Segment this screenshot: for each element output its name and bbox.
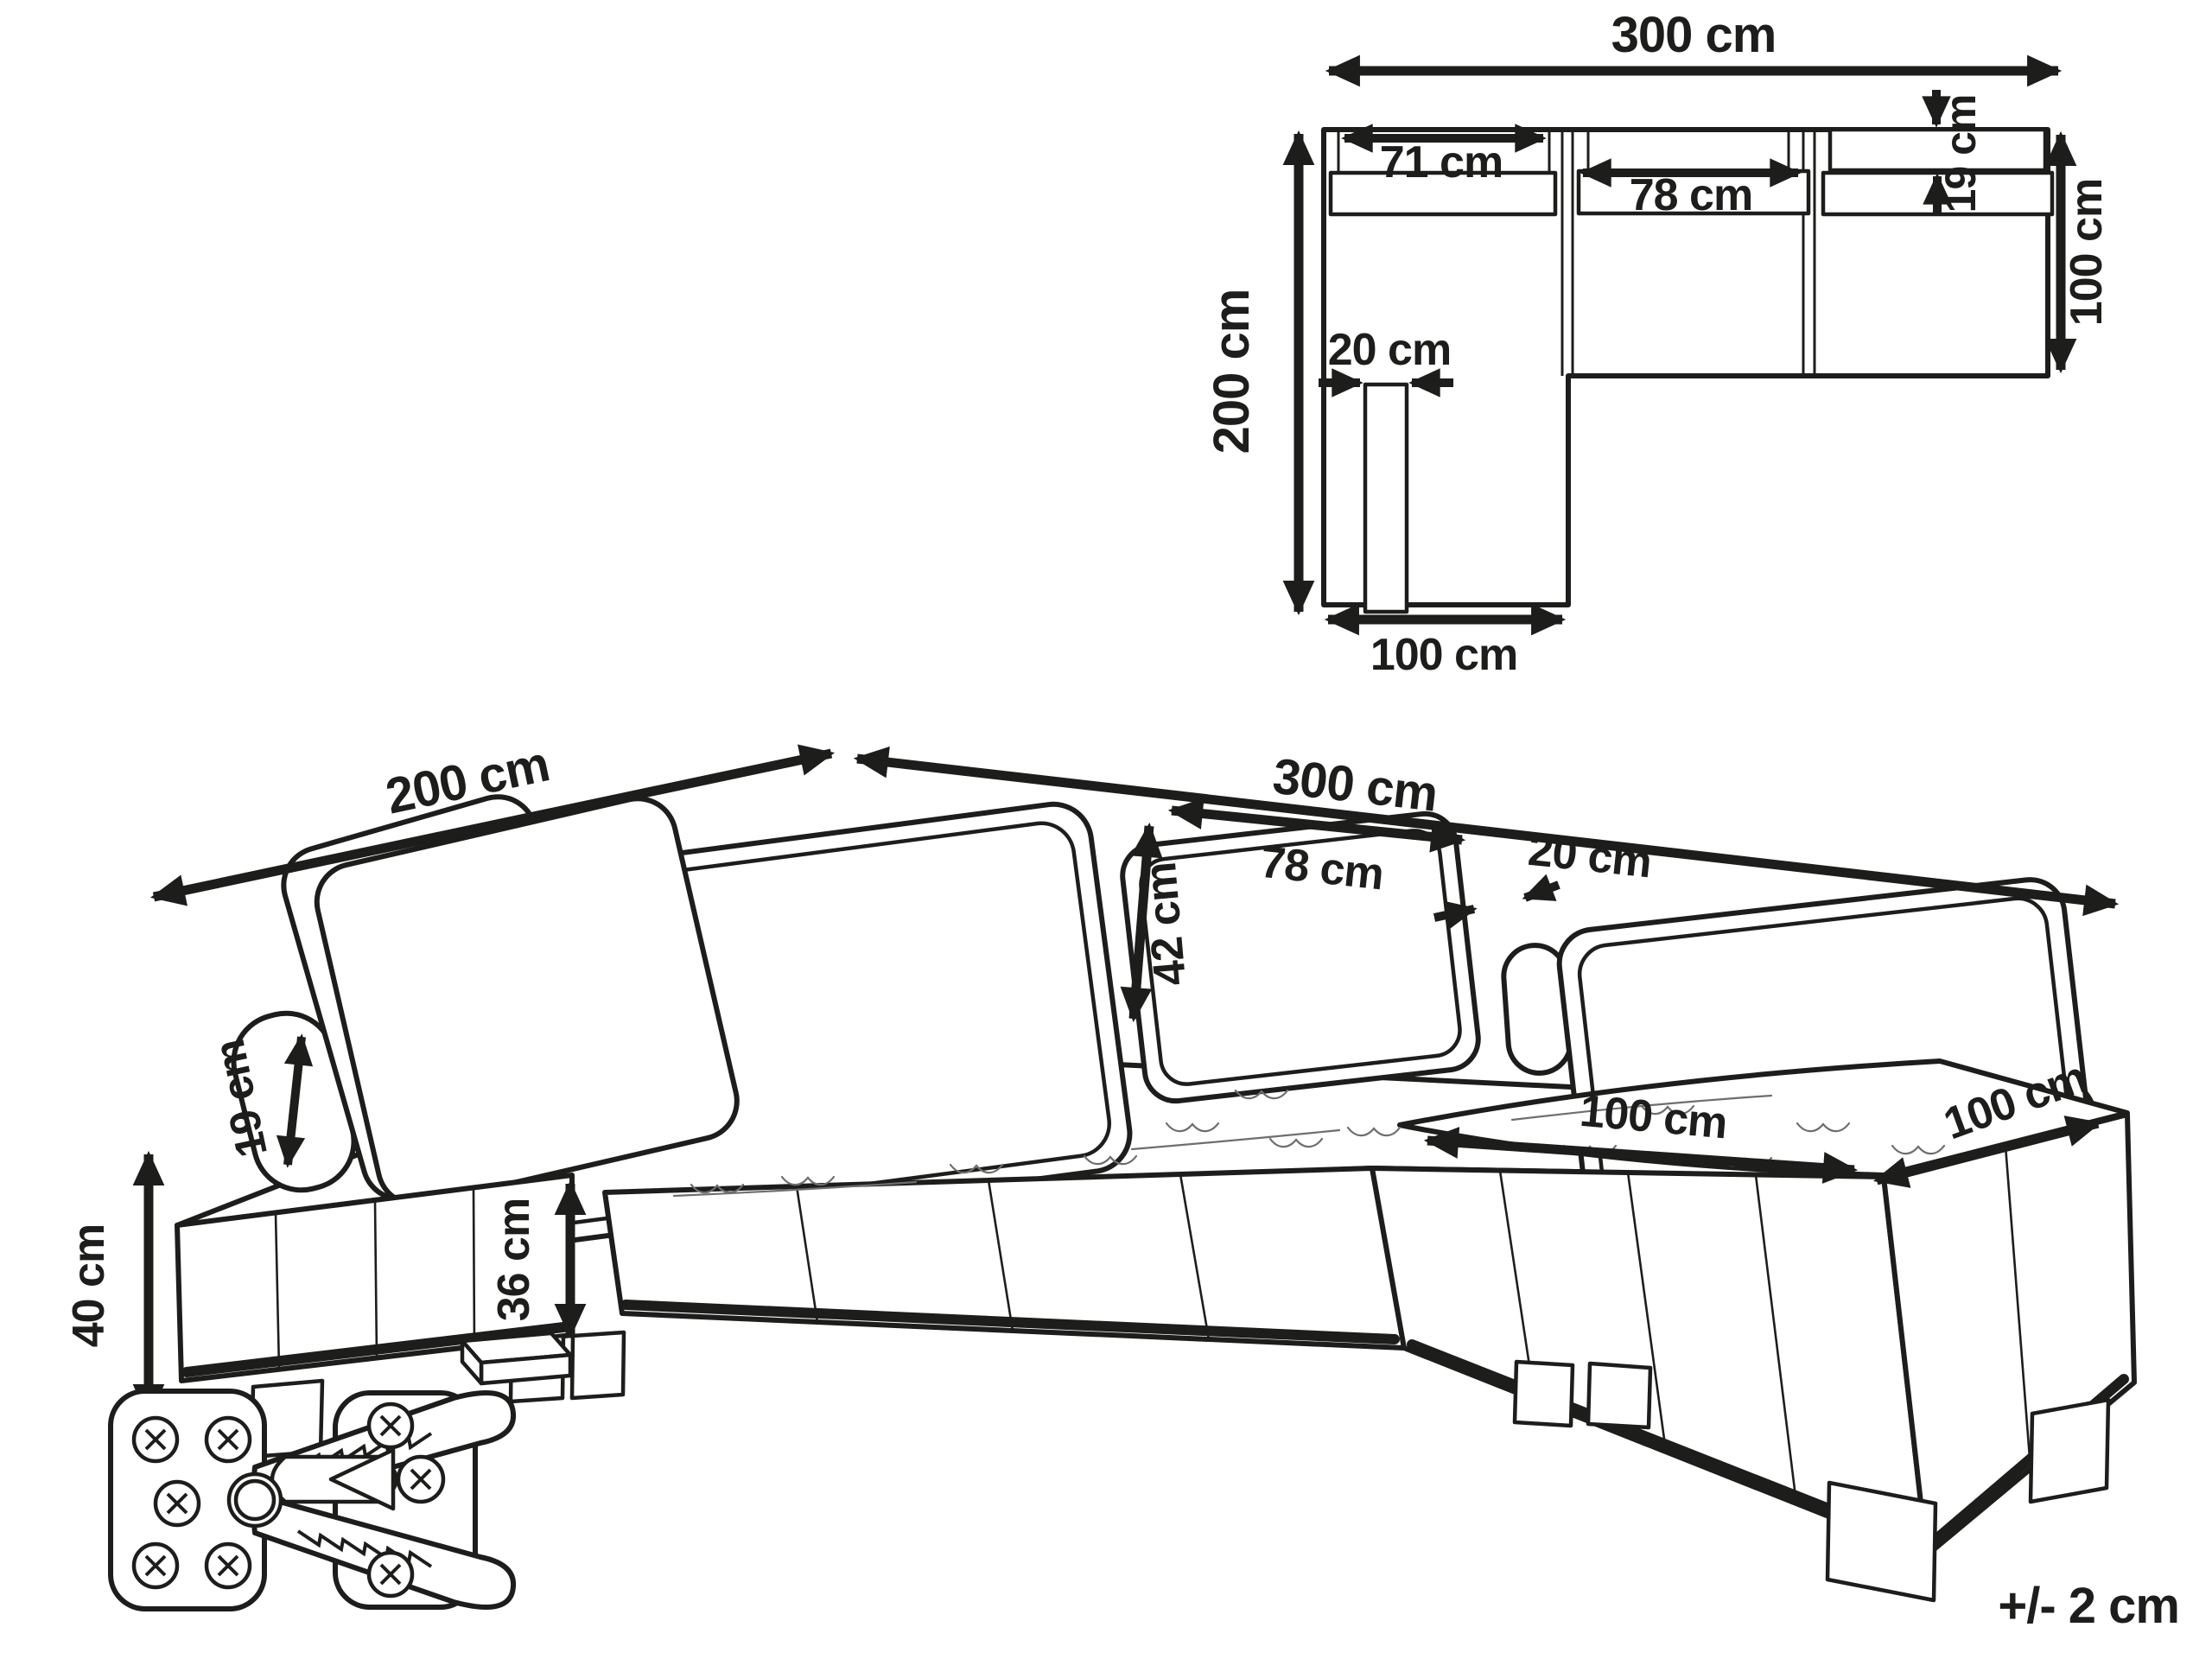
dim-back-cushion-thickness: 20 cm [1434, 825, 1654, 918]
plan-dim-middle-cushion-label: 78 cm [1630, 170, 1752, 220]
diagram-canvas: 300 cm 200 cm 71 cm 78 cm 19 cm 100 cm 2… [0, 0, 2212, 1659]
plan-chaise-back-cushion [1365, 385, 1407, 612]
screw [134, 1418, 177, 1461]
screw [134, 1544, 177, 1587]
screw [398, 1457, 443, 1502]
screw [369, 1553, 412, 1596]
tolerance-note: +/- 2 cm [1998, 1578, 2179, 1634]
plan-dim-total-depth-label: 200 cm [1204, 289, 1260, 454]
connector-box-icon [462, 1333, 570, 1383]
clip-pivot-inner [236, 1481, 274, 1519]
screw [156, 1482, 199, 1525]
dim-seat-height-label: 40 cm [64, 1224, 114, 1347]
plan-dim-chaise-width-label: 100 cm [1370, 630, 1517, 680]
dim-seat-height: 40 cm [64, 1154, 149, 1415]
sofa-dimension-diagram: 300 cm 200 cm 71 cm 78 cm 19 cm 100 cm 2… [0, 0, 2212, 1659]
dim-base-height-label: 36 cm [489, 1198, 539, 1321]
screw [207, 1418, 250, 1461]
plan-dim-total-width: 300 cm [1329, 7, 2058, 71]
sofa-foot [572, 1332, 624, 1398]
sofa-foot [1827, 1483, 1935, 1600]
plan-dim-chaise-width: 100 cm [1328, 620, 1562, 680]
plan-dim-total-depth: 200 cm [1204, 134, 1299, 612]
plan-dim-left-cushion-label: 71 cm [1380, 137, 1503, 188]
plan-dim-module-depth: 100 cm [2061, 135, 2112, 370]
sofa-foot [2031, 1400, 2108, 1502]
plan-dim-module-depth-label: 100 cm [2062, 179, 2112, 326]
plan-dim-total-width-label: 300 cm [1611, 7, 1777, 63]
plan-dim-chaise-cushion: 20 cm [1319, 325, 1453, 383]
sofa-foot [1588, 1363, 1650, 1427]
dim-back-cushion-thickness-label: 20 cm [1526, 825, 1654, 888]
plan-dim-cushion-depth: 19 cm [1936, 90, 1985, 213]
screw [207, 1544, 250, 1587]
plan-view: 300 cm 200 cm 71 cm 78 cm 19 cm 100 cm 2… [1204, 7, 2112, 680]
plan-dim-cushion-depth-label: 19 cm [1936, 95, 1985, 213]
screw [369, 1404, 412, 1447]
plan-dim-chaise-cushion-label: 20 cm [1328, 325, 1451, 375]
dim-back-cushion-height-label: 42 cm [1135, 861, 1196, 988]
sofa-foot [1515, 1362, 1573, 1426]
